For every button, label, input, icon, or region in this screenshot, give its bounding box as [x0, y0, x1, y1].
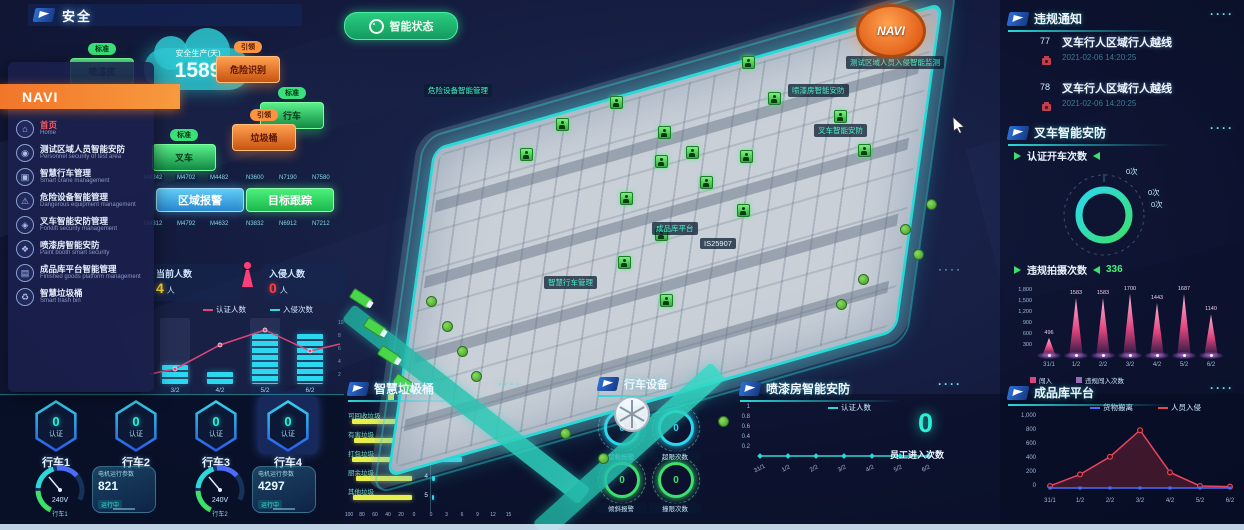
x-label: 2/2 [1090, 362, 1116, 368]
x-label: 6/2 [295, 387, 325, 394]
map-marker[interactable] [620, 192, 633, 205]
nav-item-label: 测试区域人员智能安防 [40, 144, 125, 154]
ring-label: 倾斜报警 [595, 503, 647, 513]
panel-menu-dots[interactable]: ···· [1210, 7, 1234, 21]
ring-value: 0 [658, 462, 694, 498]
intrusion-people-value: 0 [269, 280, 277, 296]
axis-tick: 20 [394, 512, 408, 518]
crane-badge-2: 0认证 [112, 400, 160, 452]
panel-title: 违规通知 [1034, 10, 1082, 27]
flag-icon [33, 8, 56, 22]
camera-icon [1042, 98, 1053, 116]
nav-item-0[interactable]: ⌂首页Home [16, 120, 146, 138]
zone-code: M4482 [208, 174, 230, 182]
svg-text:行车2: 行车2 [212, 510, 228, 518]
nav-item-sub: Personnel security of test area [40, 154, 125, 161]
count-bar [432, 419, 508, 424]
equip-ring-0: 0 [598, 404, 646, 452]
flag-icon [739, 382, 762, 396]
motor-param-card-2: 电机运行参数4297运行中 [252, 466, 316, 513]
truck-icon [349, 288, 373, 309]
x-label: 6/2 [921, 464, 931, 473]
right-axis-tick: 6 [338, 346, 341, 352]
auth-line [148, 318, 346, 386]
nav-item-label: 成品库平台智能管理 [40, 264, 141, 274]
x-label: 31/1 [753, 464, 766, 475]
svg-text:240V: 240V [52, 497, 69, 504]
y-axis-tick: 300 [1006, 342, 1032, 348]
panel-title: 行车设备 [624, 376, 668, 392]
nav-item-1[interactable]: ◉测试区域人员智能安防Personnel security of test ar… [16, 144, 146, 162]
mouse-cursor [952, 116, 966, 139]
badge-value: 0 [52, 414, 59, 429]
zone-code: N3832 [244, 220, 266, 228]
spike-dot [1102, 354, 1105, 357]
module-box-1: 引领危险识别 [216, 36, 280, 83]
camera-icon [1042, 52, 1053, 70]
spike-bar [1067, 298, 1085, 356]
x-label: 4/2 [1144, 362, 1170, 368]
x-label: 5/2 [893, 464, 903, 473]
panel-menu-dots[interactable]: ···· [1210, 381, 1234, 395]
panel-menu-dots[interactable]: ···· [1210, 121, 1234, 135]
badge-label: 认证 [129, 429, 143, 439]
nav-item-3[interactable]: ⚠危险设备智能管理Dangerous equipment management [16, 192, 146, 210]
nav-item-sub: Home [40, 130, 57, 137]
nav-item-icon: ◉ [16, 144, 34, 162]
tree-icon [913, 249, 924, 260]
svg-text:行车1: 行车1 [52, 510, 68, 518]
map-marker[interactable] [658, 126, 671, 139]
spike-dot [1210, 354, 1213, 357]
equip-ring-1: 0 [652, 404, 700, 452]
target-icon [369, 19, 384, 34]
nav-item-text: 测试区域人员智能安防Personnel security of test are… [40, 144, 125, 161]
y-axis-tick: 1,800 [1006, 287, 1032, 293]
map-zone-label-3: 叉车智能安防 [814, 124, 867, 137]
nav-item-icon: ▤ [16, 264, 34, 282]
y-axis-tick: 1,200 [1006, 309, 1032, 315]
x-label: 2/2 [1098, 498, 1122, 504]
ring-value: 0 [658, 410, 694, 446]
nav-item-text: 叉车智能安防管理Forklift security management [40, 216, 117, 233]
panel-menu-dots[interactable]: ···· [938, 377, 962, 391]
nav-item-label: 智慧垃圾桶 [40, 288, 83, 298]
nav-item-6[interactable]: ▤成品库平台智能管理Finished goods platform manage… [16, 264, 146, 282]
axis-tick: 9 [471, 512, 485, 518]
legend-dash-icon [1158, 407, 1168, 409]
nav-item-icon: ⌂ [16, 120, 34, 138]
legend-square-icon [1030, 377, 1036, 383]
donut-label-1: 0次 [1146, 187, 1162, 198]
spike-value: 1443 [1144, 295, 1170, 301]
paint-panel-title: 喷漆房智能安防 ···· [740, 380, 964, 397]
nav-item-label: 智慧行车管理 [40, 168, 109, 178]
finished-panel-title: 成品库平台 ···· [1008, 384, 1236, 401]
map-zone-label-1: 测试区域人员入侵智能监测 [846, 56, 944, 69]
legend-dash-icon [1090, 407, 1100, 409]
x-label: 31/1 [1038, 498, 1062, 504]
panel-menu-dots[interactable]: ···· [498, 377, 522, 391]
spike-bar [1121, 294, 1139, 356]
box-label: 垃圾桶 [232, 124, 296, 151]
unit-label: 人 [280, 286, 288, 295]
access-combo-chart: 认证人数入侵次数3/24/25/26/2108642 [148, 300, 346, 398]
finished-goods-plot [1042, 412, 1240, 494]
axis-line [430, 408, 431, 512]
zone-code: N7212 [310, 220, 332, 228]
panel-title: 叉车智能安防 [1034, 124, 1106, 141]
y-axis-tick: 900 [1006, 320, 1032, 326]
axis-tick: 3 [440, 512, 454, 518]
map-zone-label-2: 喷漆房智能安防 [788, 84, 849, 97]
violation-time: 2021-02-06 14:20:25 [1062, 53, 1136, 62]
spike-dot [1183, 354, 1186, 357]
spike-value: 1700 [1117, 286, 1143, 292]
page-header: 安全 [28, 4, 302, 26]
spike-bar [1094, 298, 1112, 356]
nav-item-text: 首页Home [40, 120, 57, 137]
map-marker[interactable] [556, 118, 569, 131]
map-marker[interactable] [520, 148, 533, 161]
equip-ring-2: 0 [598, 456, 646, 504]
nav-item-icon: ❖ [16, 240, 34, 258]
map-marker[interactable] [858, 144, 871, 157]
panel-title: 成品库平台 [1034, 384, 1094, 401]
dashboard: 危险设备智能管理测试区域人员入侵智能监测喷漆房智能安防叉车智能安防成品库平台智慧… [0, 0, 1244, 530]
trash-panel-title: 智慧垃圾桶 ···· [348, 380, 524, 397]
current-people-stat: 当前人数 4人 [150, 264, 242, 301]
current-people-value: 4 [156, 280, 164, 296]
x-label: 3/2 [837, 464, 847, 473]
axis-tick: 0 [407, 512, 421, 518]
nav-item-text: 智慧垃圾桶Smart trash bin [40, 288, 83, 305]
truck-icon [377, 345, 401, 366]
trash-bars-chart: 容量数量可回收垃圾有害垃圾打包垃圾厨余垃圾其他垃圾100806040200123… [344, 392, 544, 526]
spike-dot [1156, 354, 1159, 357]
tree-icon [426, 296, 437, 307]
legend-认证人数: 认证人数 [203, 304, 246, 315]
x-label: 3/2 [1117, 362, 1143, 368]
triangle-right-icon [1014, 152, 1021, 160]
capacity-bar [353, 495, 412, 500]
spike-value: 496 [1036, 330, 1062, 336]
right-axis-tick: 2 [338, 372, 341, 378]
navi-badge: NAVI [856, 4, 926, 58]
target-track-button[interactable]: 目标跟踪 [246, 188, 334, 212]
page-title: 安全 [62, 6, 92, 25]
donut-label-0: 0次 [1124, 166, 1140, 177]
x-label: 5/2 [1188, 498, 1212, 504]
nav-item-label: 危险设备智能管理 [40, 192, 136, 202]
box-label: 叉车 [152, 144, 216, 171]
zone-code: N6912 [277, 220, 299, 228]
violation-id: 78 [1040, 82, 1050, 92]
x-label: 3/2 [160, 387, 190, 394]
map-marker[interactable] [660, 294, 673, 307]
spike-dot [1129, 354, 1132, 357]
badge-label: 认证 [49, 429, 63, 439]
legend-square-icon [1076, 377, 1082, 383]
nav-item-sub: Paint booth smart security [40, 250, 109, 257]
axis-tick: 6 [455, 512, 469, 518]
x-label: 5/2 [1171, 362, 1197, 368]
violation-list: 77叉车行人区域行人越线2021-02-06 14:20:2578叉车行人区域行… [1006, 34, 1240, 118]
motor-param-card-1: 电机运行参数821运行中 [92, 466, 156, 513]
smart-status-button[interactable]: 智能状态 [344, 12, 458, 40]
trash-row-number: 5 [420, 492, 428, 499]
badge-value: 0 [212, 414, 219, 429]
card-title: 电机运行参数 [98, 469, 150, 478]
spike-bar [1148, 303, 1166, 356]
map-marker[interactable] [834, 110, 847, 123]
map-marker[interactable] [655, 228, 668, 241]
trash-row-number: 4 [420, 473, 428, 480]
ring-label: 撞限次数 [649, 503, 701, 513]
crane-equip-panel-title: 行车设备 [598, 376, 718, 392]
violation-time: 2021-02-06 14:20:25 [1062, 99, 1136, 108]
svg-text:240V: 240V [212, 497, 229, 504]
violation-item[interactable]: 77叉车行人区域行人越线2021-02-06 14:20:25 [1006, 34, 1236, 74]
unit-label: 人 [167, 286, 175, 295]
axis-tick: 80 [355, 512, 369, 518]
right-axis-tick: 8 [338, 333, 341, 339]
y-axis-tick: 1,500 [1006, 298, 1032, 304]
count-bar [432, 495, 434, 500]
spike-value: 1583 [1063, 290, 1089, 296]
map-marker[interactable] [768, 92, 781, 105]
capture-spike-chart: 1,8001,5001,20090060030049631/115831/215… [1006, 282, 1242, 386]
map-marker[interactable] [655, 155, 668, 168]
y-axis-tick: 0.4 [734, 434, 750, 440]
y-axis-tick: 600 [1006, 331, 1032, 337]
y-axis-tick: 800 [1006, 427, 1036, 433]
card-value: 821 [98, 479, 150, 493]
voltage-gauge-2: 240V行车2 [188, 462, 252, 520]
nav-item-sub: Dangerous equipment management [40, 202, 136, 209]
tree-icon [442, 321, 453, 332]
voltage-gauge-1: 240V行车1 [28, 462, 92, 520]
x-label: 2/2 [809, 464, 819, 473]
nav-item-4[interactable]: ◈叉车智能安防管理Forklift security management [16, 216, 146, 234]
panel-menu-dots[interactable]: ···· [938, 262, 962, 276]
right-axis-tick: 10 [338, 320, 344, 326]
spike-dot [1075, 354, 1078, 357]
map-zone-label-6: IS25907 [700, 238, 736, 249]
tree-icon [836, 299, 847, 310]
intrusion-people-label: 入侵人数 [269, 267, 339, 280]
panel-title: 喷漆房智能安防 [766, 380, 850, 397]
zone-code: N3600 [244, 174, 266, 182]
x-label: 6/2 [1198, 362, 1224, 368]
truck-icon [363, 317, 387, 338]
x-label: 4/2 [865, 464, 875, 473]
map-aisle [435, 62, 920, 213]
nav-item-5[interactable]: ❖喷漆房智能安防Paint booth smart security [16, 240, 146, 258]
y-axis-tick: 200 [1006, 469, 1036, 475]
x-label: 1/2 [781, 464, 791, 473]
triangle-right-icon [1014, 266, 1021, 274]
zone-code: M4702 [175, 174, 197, 182]
capacity-bar [356, 476, 412, 481]
nav-item-text: 危险设备智能管理Dangerous equipment management [40, 192, 136, 209]
axis-tick: 100 [342, 512, 356, 518]
violations-panel-title: 违规通知 ···· [1008, 10, 1236, 27]
triangle-left-icon [1093, 266, 1100, 274]
legend-dash-icon [203, 309, 213, 311]
smart-status-label: 智能状态 [390, 18, 434, 34]
map-marker[interactable] [610, 96, 623, 109]
x-label: 4/2 [205, 387, 235, 394]
paint-auth-chart: 认证人数10.80.60.40.231/11/22/23/24/25/26/2 [728, 398, 1000, 510]
nav-item-text: 智慧行车管理Smart crane management [40, 168, 109, 185]
equip-ring-3: 0 [652, 456, 700, 504]
spike-bar [1202, 314, 1220, 356]
axis-tick: 12 [486, 512, 500, 518]
capacity-bar [352, 419, 412, 424]
badge-value: 0 [284, 414, 291, 429]
badge-value: 0 [132, 414, 139, 429]
nav-item-sub: Forklift security management [40, 226, 117, 233]
violation-text: 叉车行人区域行人越线 [1062, 34, 1172, 50]
y-axis-tick: 0.6 [734, 424, 750, 430]
count-bar [432, 457, 462, 462]
crane-badge-1: 0认证 [32, 400, 80, 452]
legend-label: 认证人数 [216, 304, 246, 315]
y-axis-tick: 0 [1006, 483, 1036, 489]
spike-bar [1175, 294, 1193, 356]
trash-row-number: 1 [420, 416, 428, 423]
box-label: 危险识别 [216, 56, 280, 83]
capacity-bar [354, 438, 412, 443]
ring-value: 0 [604, 410, 640, 446]
donut-label-2: 0次 [1149, 199, 1165, 210]
y-axis-tick: 0.8 [734, 414, 750, 420]
zone-code: N7580 [310, 174, 332, 182]
map-marker[interactable] [700, 176, 713, 189]
nav-item-sub: Smart crane management [40, 178, 109, 185]
nav-item-7[interactable]: ♻智慧垃圾桶Smart trash bin [16, 288, 146, 306]
nav-item-text: 喷漆房智能安防Paint booth smart security [40, 240, 109, 257]
intrusion-people-stat: 入侵人数 0人 [263, 264, 345, 301]
area-alarm-button[interactable]: 区域报警 [156, 188, 244, 212]
forklift-panel-title: 叉车智能安防 ···· [1008, 124, 1236, 141]
x-label: 3/2 [1128, 498, 1152, 504]
card-title: 电机运行参数 [258, 469, 310, 478]
card-underline [273, 508, 295, 510]
y-axis-tick: 600 [1006, 441, 1036, 447]
flag-icon [347, 382, 370, 396]
flag-icon [1007, 12, 1030, 26]
module-box-4: 标准叉车 [152, 124, 216, 171]
box-tag: 标准 [170, 129, 198, 141]
paint-entry-label: 员工进入次数 [890, 448, 944, 461]
x-label: 1/2 [1068, 498, 1092, 504]
right-axis-tick: 4 [338, 359, 341, 365]
x-label: 5/2 [250, 387, 280, 394]
triangle-left-icon [1093, 152, 1100, 160]
module-box-3: 引领垃圾桶 [232, 104, 296, 151]
paint-entry-count: 0 [918, 408, 933, 439]
bottom-strip [0, 524, 1244, 530]
map-marker[interactable] [618, 256, 631, 269]
crane-badge-3: 0认证 [192, 400, 240, 452]
badge-label: 认证 [281, 429, 295, 439]
spike-value: 1140 [1198, 306, 1224, 312]
ring-value: 0 [604, 462, 640, 498]
nav-item-icon: ⚠ [16, 192, 34, 210]
violation-item[interactable]: 78叉车行人区域行人越线2021-02-06 14:20:25 [1006, 80, 1236, 120]
nav-title: NAVI [0, 84, 180, 109]
map-marker[interactable] [686, 146, 699, 159]
y-axis-tick: 1 [734, 404, 750, 410]
zone-code: N7190 [277, 174, 299, 182]
box-tag: 引领 [250, 109, 278, 121]
y-axis-tick: 1,000 [1006, 413, 1036, 419]
finished-goods-chart: 货物搬离人员入侵1,000800600400200031/11/22/23/24… [1006, 402, 1242, 514]
spike-value: 1583 [1090, 290, 1116, 296]
map-marker[interactable] [742, 56, 755, 69]
person-icon [240, 261, 255, 294]
tree-icon [900, 224, 911, 235]
spike-dot [1048, 354, 1051, 357]
axis-tick: 0 [424, 512, 438, 518]
violation-text: 叉车行人区域行人越线 [1062, 80, 1172, 96]
map-zone-label-5: 智慧行车管理 [544, 276, 597, 289]
tree-icon [926, 199, 937, 210]
y-axis-tick: 400 [1006, 455, 1036, 461]
tree-icon [457, 346, 468, 357]
box-tag: 标准 [88, 43, 116, 55]
nav-item-icon: ▣ [16, 168, 34, 186]
x-label: 4/2 [1158, 498, 1182, 504]
crane-badge-4: 0认证 [264, 400, 312, 452]
capture-label: 违规拍摄次数 [1027, 262, 1087, 277]
flag-icon [597, 377, 620, 391]
trash-row-number: 2 [420, 435, 428, 442]
axis-tick: 40 [381, 512, 395, 518]
forklift-donut-chart [1036, 160, 1186, 265]
current-people-label: 当前人数 [156, 267, 236, 280]
map-zone-label-0: 危险设备智能管理 [424, 84, 492, 97]
flag-icon [1007, 126, 1030, 140]
trash-row-number: 3 [420, 454, 428, 461]
count-bar [432, 438, 493, 443]
zone-code: M4632 [208, 220, 230, 228]
map-marker[interactable] [737, 204, 750, 217]
map-marker[interactable] [740, 150, 753, 163]
nav-item-text: 成品库平台智能管理Finished goods platform managem… [40, 264, 141, 281]
spike-value: 1687 [1171, 286, 1197, 292]
badge-label: 认证 [209, 429, 223, 439]
nav-item-sub: Finished goods platform management [40, 274, 141, 281]
nav-item-label: 叉车智能安防管理 [40, 216, 117, 226]
nav-item-sub: Smart trash bin [40, 298, 83, 305]
legend-label: 入侵次数 [283, 304, 313, 315]
nav-item-2[interactable]: ▣智慧行车管理Smart crane management [16, 168, 146, 186]
box-tag: 引领 [234, 41, 262, 53]
y-axis-tick: 0.2 [734, 444, 750, 450]
nav-item-label: 首页 [40, 120, 57, 130]
axis-tick: 15 [502, 512, 516, 518]
card-underline [113, 508, 135, 510]
count-bar [432, 476, 435, 481]
x-label: 1/2 [1063, 362, 1089, 368]
nav-item-icon: ♻ [16, 288, 34, 306]
capture-value: 336 [1106, 264, 1123, 275]
zone-code: M4792 [175, 220, 197, 228]
box-tag: 标准 [278, 87, 306, 99]
